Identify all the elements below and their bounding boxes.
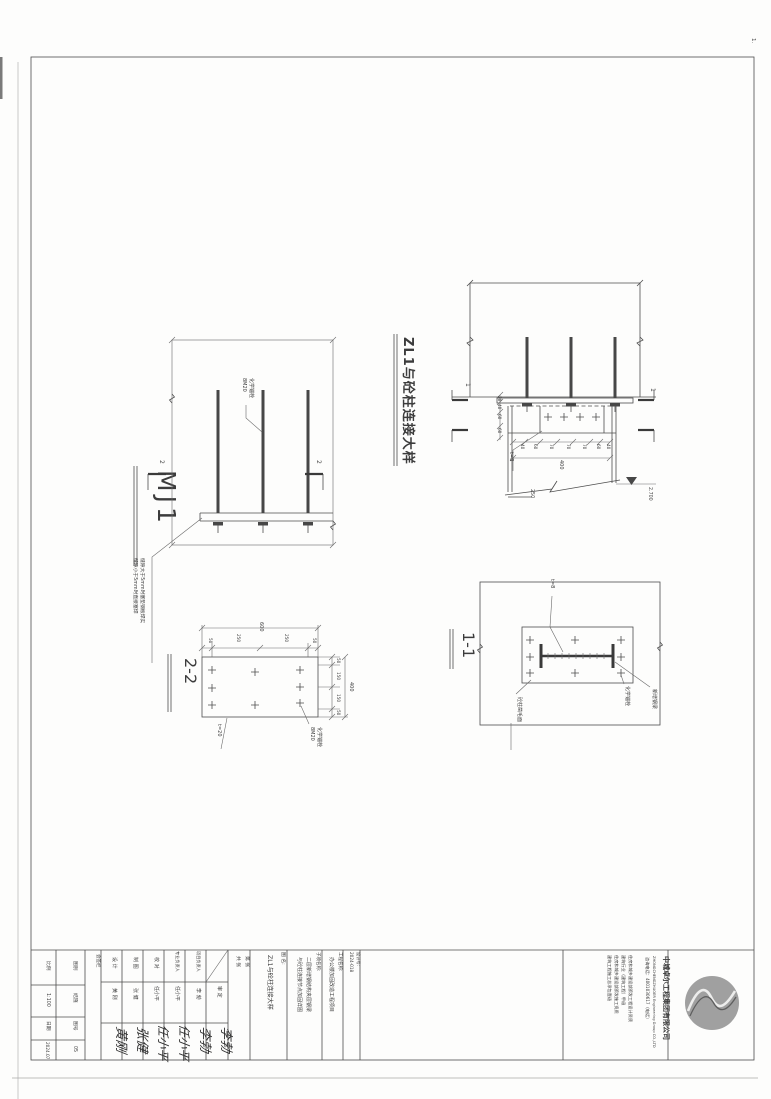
subproject-line2: 与砼柱连接节点加固详图: [296, 957, 303, 1012]
label-sheetno: 图号: [72, 1021, 78, 1031]
job-number-label: 设计号:: [355, 952, 362, 966]
corner-pencil-mark: 1.: [750, 38, 756, 43]
value-sheetno: 05: [72, 1046, 78, 1052]
name-discipline-lead: 任小平: [174, 986, 181, 1001]
dim-total: 400: [558, 460, 564, 470]
company-block: 住房和城乡建设部颁发工程设计资质 建筑行业（建筑工程）甲级 住房和城乡建设部颁发…: [606, 955, 671, 1048]
value-date: 2024.07: [45, 1042, 50, 1060]
dim-label: 150: [336, 694, 341, 702]
project-name-label: 工程名称:: [337, 952, 344, 972]
gap-note-line1: 缝隙大于5mm时塞垫钢板焊实: [139, 558, 146, 623]
subproject-label: 子项名称:: [315, 952, 322, 972]
section-number: 1: [649, 388, 656, 392]
name-designer: 黄 刚: [111, 988, 118, 1000]
section-1-1: 1-1 t=8 化学锚栓 新增钢梁 砼柱凿毛面: [450, 579, 663, 750]
level-value: 2.700: [647, 487, 653, 501]
dim-label: 70: [582, 444, 587, 450]
scan-edge-mark: [0, 57, 3, 99]
name-project-lead: 李 勃: [195, 988, 202, 1000]
title-block: 比例 1:100 日期 2024.07 图别 结施 图号 05 会签栏 设 计 …: [31, 950, 739, 1063]
anchor-type-label: 化学锚栓: [316, 727, 323, 747]
company-phone: 咨询电话：4001030617（电话）: [644, 957, 651, 1021]
dim-label: 50: [312, 638, 317, 644]
detail-mj1: MJ1 8M20 化学锚栓 2 2: [132, 337, 336, 663]
section-2-2-title: 2-2: [181, 658, 200, 684]
dim-label: 70: [549, 444, 554, 450]
value-scale: 1:100: [45, 993, 51, 1007]
column-width-label: 250: [529, 489, 535, 498]
signature-drafter: 张健: [134, 1025, 149, 1055]
company-name: 中城卓尔工程集团有限公司: [662, 956, 671, 1040]
dim-label: 50: [336, 710, 341, 716]
company-name-en: ZHONGCHENGZHUOER Engineering Group CO.,L…: [652, 956, 656, 1048]
signature-designer: 黄刚: [113, 1025, 128, 1055]
signature-approver: 李勃: [218, 1025, 233, 1055]
dim-label: 60: [596, 444, 601, 450]
signature-discipline-lead: 任小平: [177, 1024, 191, 1064]
sheet-of-label-1: 第 张: [244, 956, 251, 967]
dim-label: 50: [336, 658, 341, 664]
scanned-drawing-sheet: 1. 比例 1:100 日期: [0, 0, 771, 1099]
anchor-bar: [570, 337, 573, 398]
dim-label: 60: [533, 444, 538, 450]
role-drafter: 制 图: [132, 957, 139, 969]
role-checker: 校 对: [153, 957, 160, 969]
company-logo: [685, 976, 739, 1030]
bolt-cross-marks: [544, 413, 600, 421]
label-date: 日期: [45, 1021, 51, 1031]
scale-number-block: 比例 1:100 日期 2024.07 图别 结施 图号 05: [45, 961, 79, 1060]
anchor-cross-marks: [208, 666, 304, 709]
role-project-lead: 项目负责人: [195, 951, 202, 973]
certification-line-1: 住房和城乡建设部颁发工程设计资质: [627, 955, 634, 1022]
plate-thickness-label: t=8: [508, 452, 514, 461]
name-drafter: 张 健: [132, 988, 139, 1000]
drawing-name-label: 图 名:: [280, 952, 287, 965]
dim-label: 70: [566, 444, 571, 450]
dim-label: 60: [497, 428, 502, 434]
sheet-of-label-2: 共 张: [235, 956, 242, 967]
dim-label: 40: [497, 404, 502, 410]
dim-label: 150: [336, 672, 341, 680]
plate-thickness-label: t=8: [549, 579, 555, 588]
steel-beam-section: [541, 644, 613, 668]
label-category: 图别: [72, 961, 79, 971]
signature-project-lead: 李勃: [197, 1025, 212, 1055]
anchor-qty-label: 8M20: [241, 378, 247, 392]
dim-total: 600: [258, 622, 264, 632]
section-number: 1: [464, 383, 471, 387]
section-number: 2: [315, 460, 322, 464]
label-countersign: 会签栏: [95, 954, 102, 968]
section-2-2: 2-2 50 250 250 50 600 50 150 150 50: [168, 622, 354, 749]
gap-note-line2: 缝隙小于5mm时直接塞焊: [132, 558, 139, 614]
section-number: 2: [158, 460, 165, 464]
anchor-bolt: [217, 390, 220, 513]
anchor-bolt: [262, 390, 265, 513]
dim-label: 40: [606, 444, 611, 450]
label-scale: 比例: [45, 961, 52, 971]
anchor-bar: [614, 337, 617, 398]
dim-label: 50: [208, 638, 213, 644]
value-category: 结施: [72, 993, 79, 1003]
plate-thickness-label: t=20: [216, 724, 222, 737]
label-approver: 审 定: [216, 986, 223, 998]
certification-line-3: 住房和城乡建设部颁发施工资质: [613, 955, 620, 1014]
certification-line-4: 建筑工程施工总承包壹级: [606, 955, 613, 1002]
anchor-type-label: 化学锚栓: [248, 378, 255, 398]
diagonal-empty-cell: [206, 950, 228, 982]
signature-block: 设 计 制 图 校 对 专业负责人 项目负责人 黄 刚 张 健 任小平 任小平 …: [111, 951, 233, 1063]
dim-label: 250: [236, 634, 241, 642]
new-beam-label: 新增钢梁: [651, 689, 658, 709]
subproject-line1: 二层新增钢结构夹层钢梁: [305, 957, 312, 1012]
dim-total: 400: [348, 682, 354, 692]
column-break-line: [505, 480, 620, 495]
drawing-name-value: ZL1与砼柱连接大样: [266, 955, 274, 1010]
certification-line-2: 建筑行业（建筑工程）甲级: [620, 955, 627, 1006]
scan-artifacts: 1.: [0, 38, 758, 1099]
job-number-value: 2024-018: [349, 952, 354, 972]
dim-label: 250: [284, 634, 289, 642]
anchor-bar: [526, 337, 529, 398]
cad-canvas: 1. 比例 1:100 日期: [0, 0, 771, 1099]
role-designer: 设 计: [111, 957, 118, 969]
name-checker: 任小平: [153, 986, 160, 1001]
dim-label: 20: [497, 396, 502, 402]
anchor-qty-label: 8M20: [309, 727, 315, 741]
anchor-bolt: [307, 390, 310, 513]
detail-mj1-title: MJ1: [152, 470, 181, 527]
detail-zl1-title: ZL1与砼柱连接大样: [400, 337, 416, 465]
project-name-value: 办公楼加固改造工程项目: [328, 957, 335, 1012]
role-discipline-lead: 专业负责人: [174, 951, 181, 973]
roughened-surface-label: 砼柱凿毛面: [516, 697, 523, 722]
dim-label: 60: [497, 414, 502, 420]
anchor-label: 化学锚栓: [624, 686, 631, 706]
signature-checker: 任小平: [156, 1024, 170, 1064]
detail-zl1: ZL1与砼柱连接大样: [394, 280, 656, 501]
base-plate: [497, 398, 633, 403]
section-1-1-title: 1-1: [459, 632, 478, 658]
